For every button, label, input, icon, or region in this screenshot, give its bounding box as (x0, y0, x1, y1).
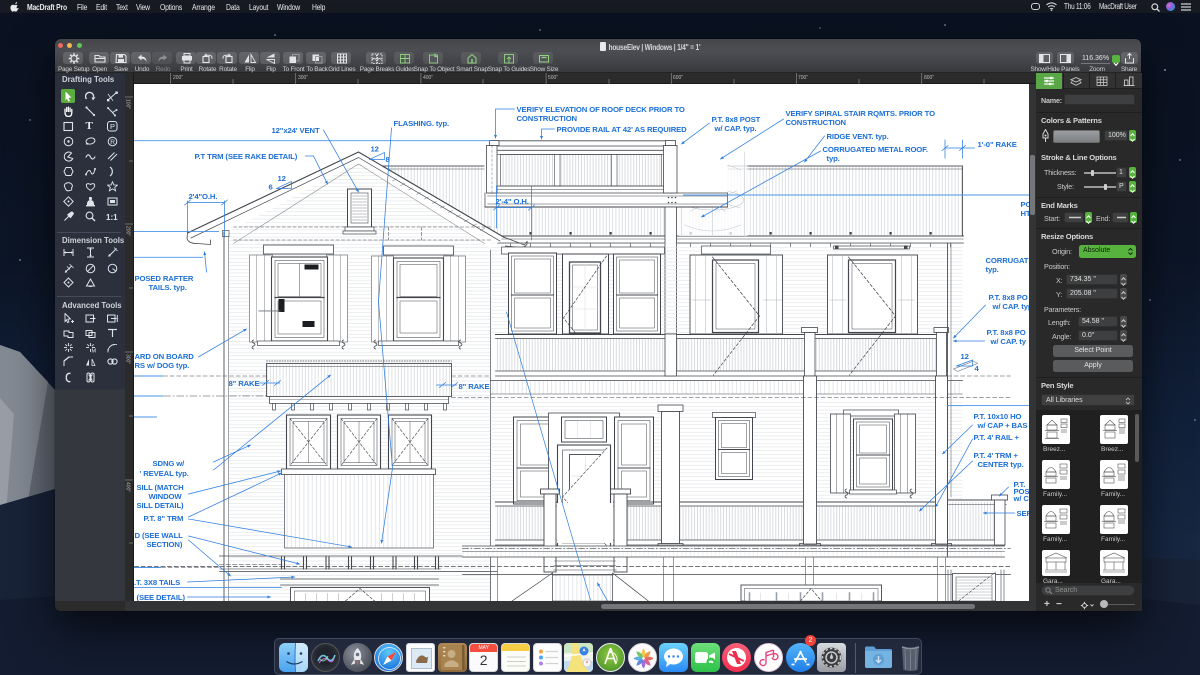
svg-text:200": 200" (125, 226, 131, 236)
svg-text:w/ CAP. typ.: w/ CAP. typ. (713, 124, 756, 133)
svg-text:400": 400" (423, 75, 433, 81)
svg-text:300": 300" (125, 354, 131, 364)
svg-text:CORRUGATED METAL ROOF.: CORRUGATED METAL ROOF. (822, 145, 927, 154)
svg-text:typ.: typ. (826, 154, 839, 163)
svg-text:WINDOW: WINDOW (148, 492, 182, 501)
svg-text:700": 700" (798, 75, 808, 81)
svg-text:12: 12 (277, 174, 285, 183)
svg-text:12: 12 (370, 145, 378, 154)
svg-text:.T. 3X8 TAILS: .T. 3X8 TAILS (134, 578, 180, 587)
svg-text:200": 200" (173, 75, 183, 81)
svg-text:POSED RAFTER: POSED RAFTER (134, 274, 193, 283)
svg-text:P.T. 8x8 PO: P.T. 8x8 PO (986, 328, 1025, 337)
svg-text:FLASHING. typ.: FLASHING. typ. (393, 119, 449, 128)
svg-text:w/ CAP. typ: w/ CAP. typ (991, 302, 1029, 311)
svg-text:6: 6 (268, 183, 272, 192)
svg-text:w/ C: w/ C (1012, 494, 1029, 503)
svg-text:SILL DETAIL): SILL DETAIL) (136, 501, 184, 510)
svg-text:P.T. 8x8 POST: P.T. 8x8 POST (711, 115, 760, 124)
svg-text:TAILS. typ.: TAILS. typ. (148, 283, 186, 292)
svg-text:P.T. 8" TRM: P.T. 8" TRM (143, 514, 183, 523)
svg-text:800": 800" (924, 75, 934, 81)
svg-text:100": 100" (125, 99, 131, 109)
svg-text:ARD ON BOARD: ARD ON BOARD (134, 352, 194, 361)
svg-text:CENTER typ.: CENTER typ. (977, 460, 1023, 469)
svg-text:8" RAKE: 8" RAKE (228, 379, 259, 388)
svg-text:300": 300" (298, 75, 308, 81)
svg-text:D (SEE WALL: D (SEE WALL (134, 531, 183, 540)
svg-text:2'-4" O.H.: 2'-4" O.H. (495, 197, 528, 206)
svg-text:1'-0" RAKE: 1'-0" RAKE (977, 140, 1016, 149)
svg-text:(SEE DETAIL): (SEE DETAIL) (136, 593, 185, 601)
svg-text:w/ CAP + BAS: w/ CAP + BAS (976, 421, 1027, 430)
svg-text:8" RAKE: 8" RAKE (458, 382, 489, 391)
svg-text:P: P (110, 122, 115, 131)
svg-text:VERIFY SPIRAL STAIR RQMTS. PRI: VERIFY SPIRAL STAIR RQMTS. PRIOR TO (785, 109, 935, 118)
svg-text:RS w/ DOG typ.: RS w/ DOG typ. (134, 361, 189, 370)
svg-text:R: R (110, 139, 115, 146)
svg-text:SDNG w/: SDNG w/ (152, 459, 185, 468)
svg-text:P.T. 10x10 HO: P.T. 10x10 HO (973, 412, 1021, 421)
svg-text:12: 12 (960, 352, 968, 361)
svg-text:500": 500" (548, 75, 558, 81)
svg-text:CORRUGAT: CORRUGAT (985, 256, 1028, 265)
svg-text:w/ CAP. ty: w/ CAP. ty (989, 337, 1026, 346)
svg-text:CONSTRUCTION: CONSTRUCTION (516, 114, 577, 123)
svg-text:P.T. 4' RAIL +: P.T. 4' RAIL + (973, 433, 1019, 442)
svg-text:SILL (MATCH: SILL (MATCH (136, 483, 184, 492)
svg-text:P.T. 8x8 PO: P.T. 8x8 PO (988, 293, 1027, 302)
svg-text:P.T. 4' TRM +: P.T. 4' TRM + (973, 451, 1018, 460)
svg-text:SECTION): SECTION) (146, 540, 182, 549)
svg-text:' REVEAL typ.: ' REVEAL typ. (139, 469, 188, 478)
svg-text:HT: HT (1020, 209, 1029, 218)
svg-text:M: M (92, 349, 97, 354)
svg-text:12"x24' VENT: 12"x24' VENT (271, 126, 319, 135)
svg-text:RIDGE VENT. typ.: RIDGE VENT. typ. (826, 132, 888, 141)
svg-text:400": 400" (125, 482, 131, 492)
svg-text:600": 600" (673, 75, 683, 81)
svg-text:SER: SER (1016, 509, 1029, 518)
svg-text:2'4"O.H.: 2'4"O.H. (188, 192, 217, 201)
svg-text:P.T TRM (SEE RAKE DETAIL): P.T TRM (SEE RAKE DETAIL) (194, 152, 297, 161)
svg-text:4: 4 (974, 364, 979, 373)
svg-text:VERIFY ELEVATION OF ROOF DECK: VERIFY ELEVATION OF ROOF DECK PRIOR TO (516, 105, 684, 114)
svg-text:PO: PO (1020, 200, 1029, 209)
svg-text:typ.: typ. (985, 265, 998, 274)
svg-text:CONSTRUCTION: CONSTRUCTION (785, 118, 846, 127)
svg-text:PROVIDE RAIL AT 42' AS REQUIRE: PROVIDE RAIL AT 42' AS REQUIRED (556, 125, 687, 134)
